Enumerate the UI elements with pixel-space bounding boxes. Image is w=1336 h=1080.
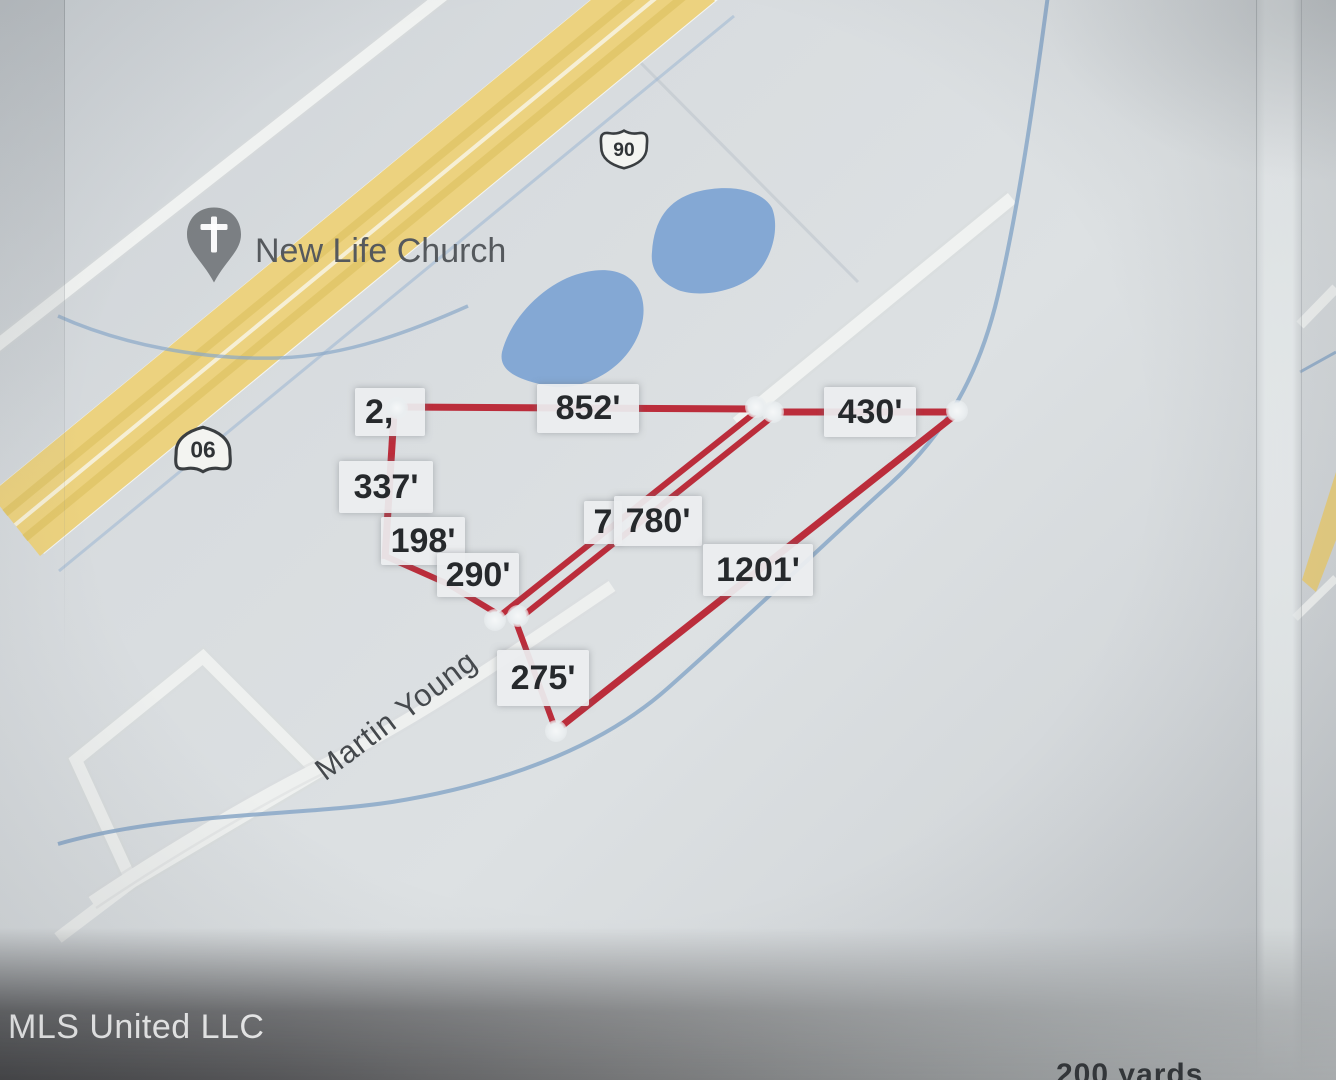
measurement-label-780: 780' <box>614 496 702 546</box>
measurement-label-852: 852' <box>537 384 639 433</box>
second-page-stream <box>1300 352 1336 372</box>
measurement-label-290: 290' <box>437 553 519 597</box>
vertex-dot-d2 <box>507 605 529 627</box>
church-label: New Life Church <box>255 232 506 271</box>
measurement-label-430: 430' <box>824 387 916 437</box>
vertex-dot-b2 <box>762 401 784 423</box>
second-page-highway <box>1302 472 1336 592</box>
scale-bar-label: 200 yards <box>1056 1058 1203 1080</box>
watermark-text: MLS United LLC <box>8 1008 264 1047</box>
page-left-fold-line <box>64 0 65 660</box>
vertex-dot-d1 <box>484 609 506 631</box>
printed-map-photo: 90 90 New Life Church Martin Young 2, 85… <box>0 0 1336 1080</box>
second-page-road <box>1300 288 1336 325</box>
vertex-dot-e <box>545 720 567 742</box>
route-90-shield-top: 90 <box>596 128 652 170</box>
church-pin-icon <box>184 206 244 284</box>
vertex-dot-a <box>386 397 408 419</box>
measurement-label-337: 337' <box>339 461 433 513</box>
loop-road <box>76 657 318 882</box>
measurement-label-1201: 1201' <box>703 544 813 596</box>
vertex-dot-c <box>946 400 968 422</box>
pond-upper <box>652 188 775 293</box>
route-90-shield-left: 90 <box>172 424 234 476</box>
pond-lower <box>502 270 644 387</box>
page-left-edge <box>0 0 64 520</box>
route-90-shield-left-number: 90 <box>190 437 215 463</box>
page-fold-strip <box>1256 0 1302 1080</box>
measurement-label-275: 275' <box>497 650 589 706</box>
route-90-shield-top-number: 90 <box>613 140 634 161</box>
